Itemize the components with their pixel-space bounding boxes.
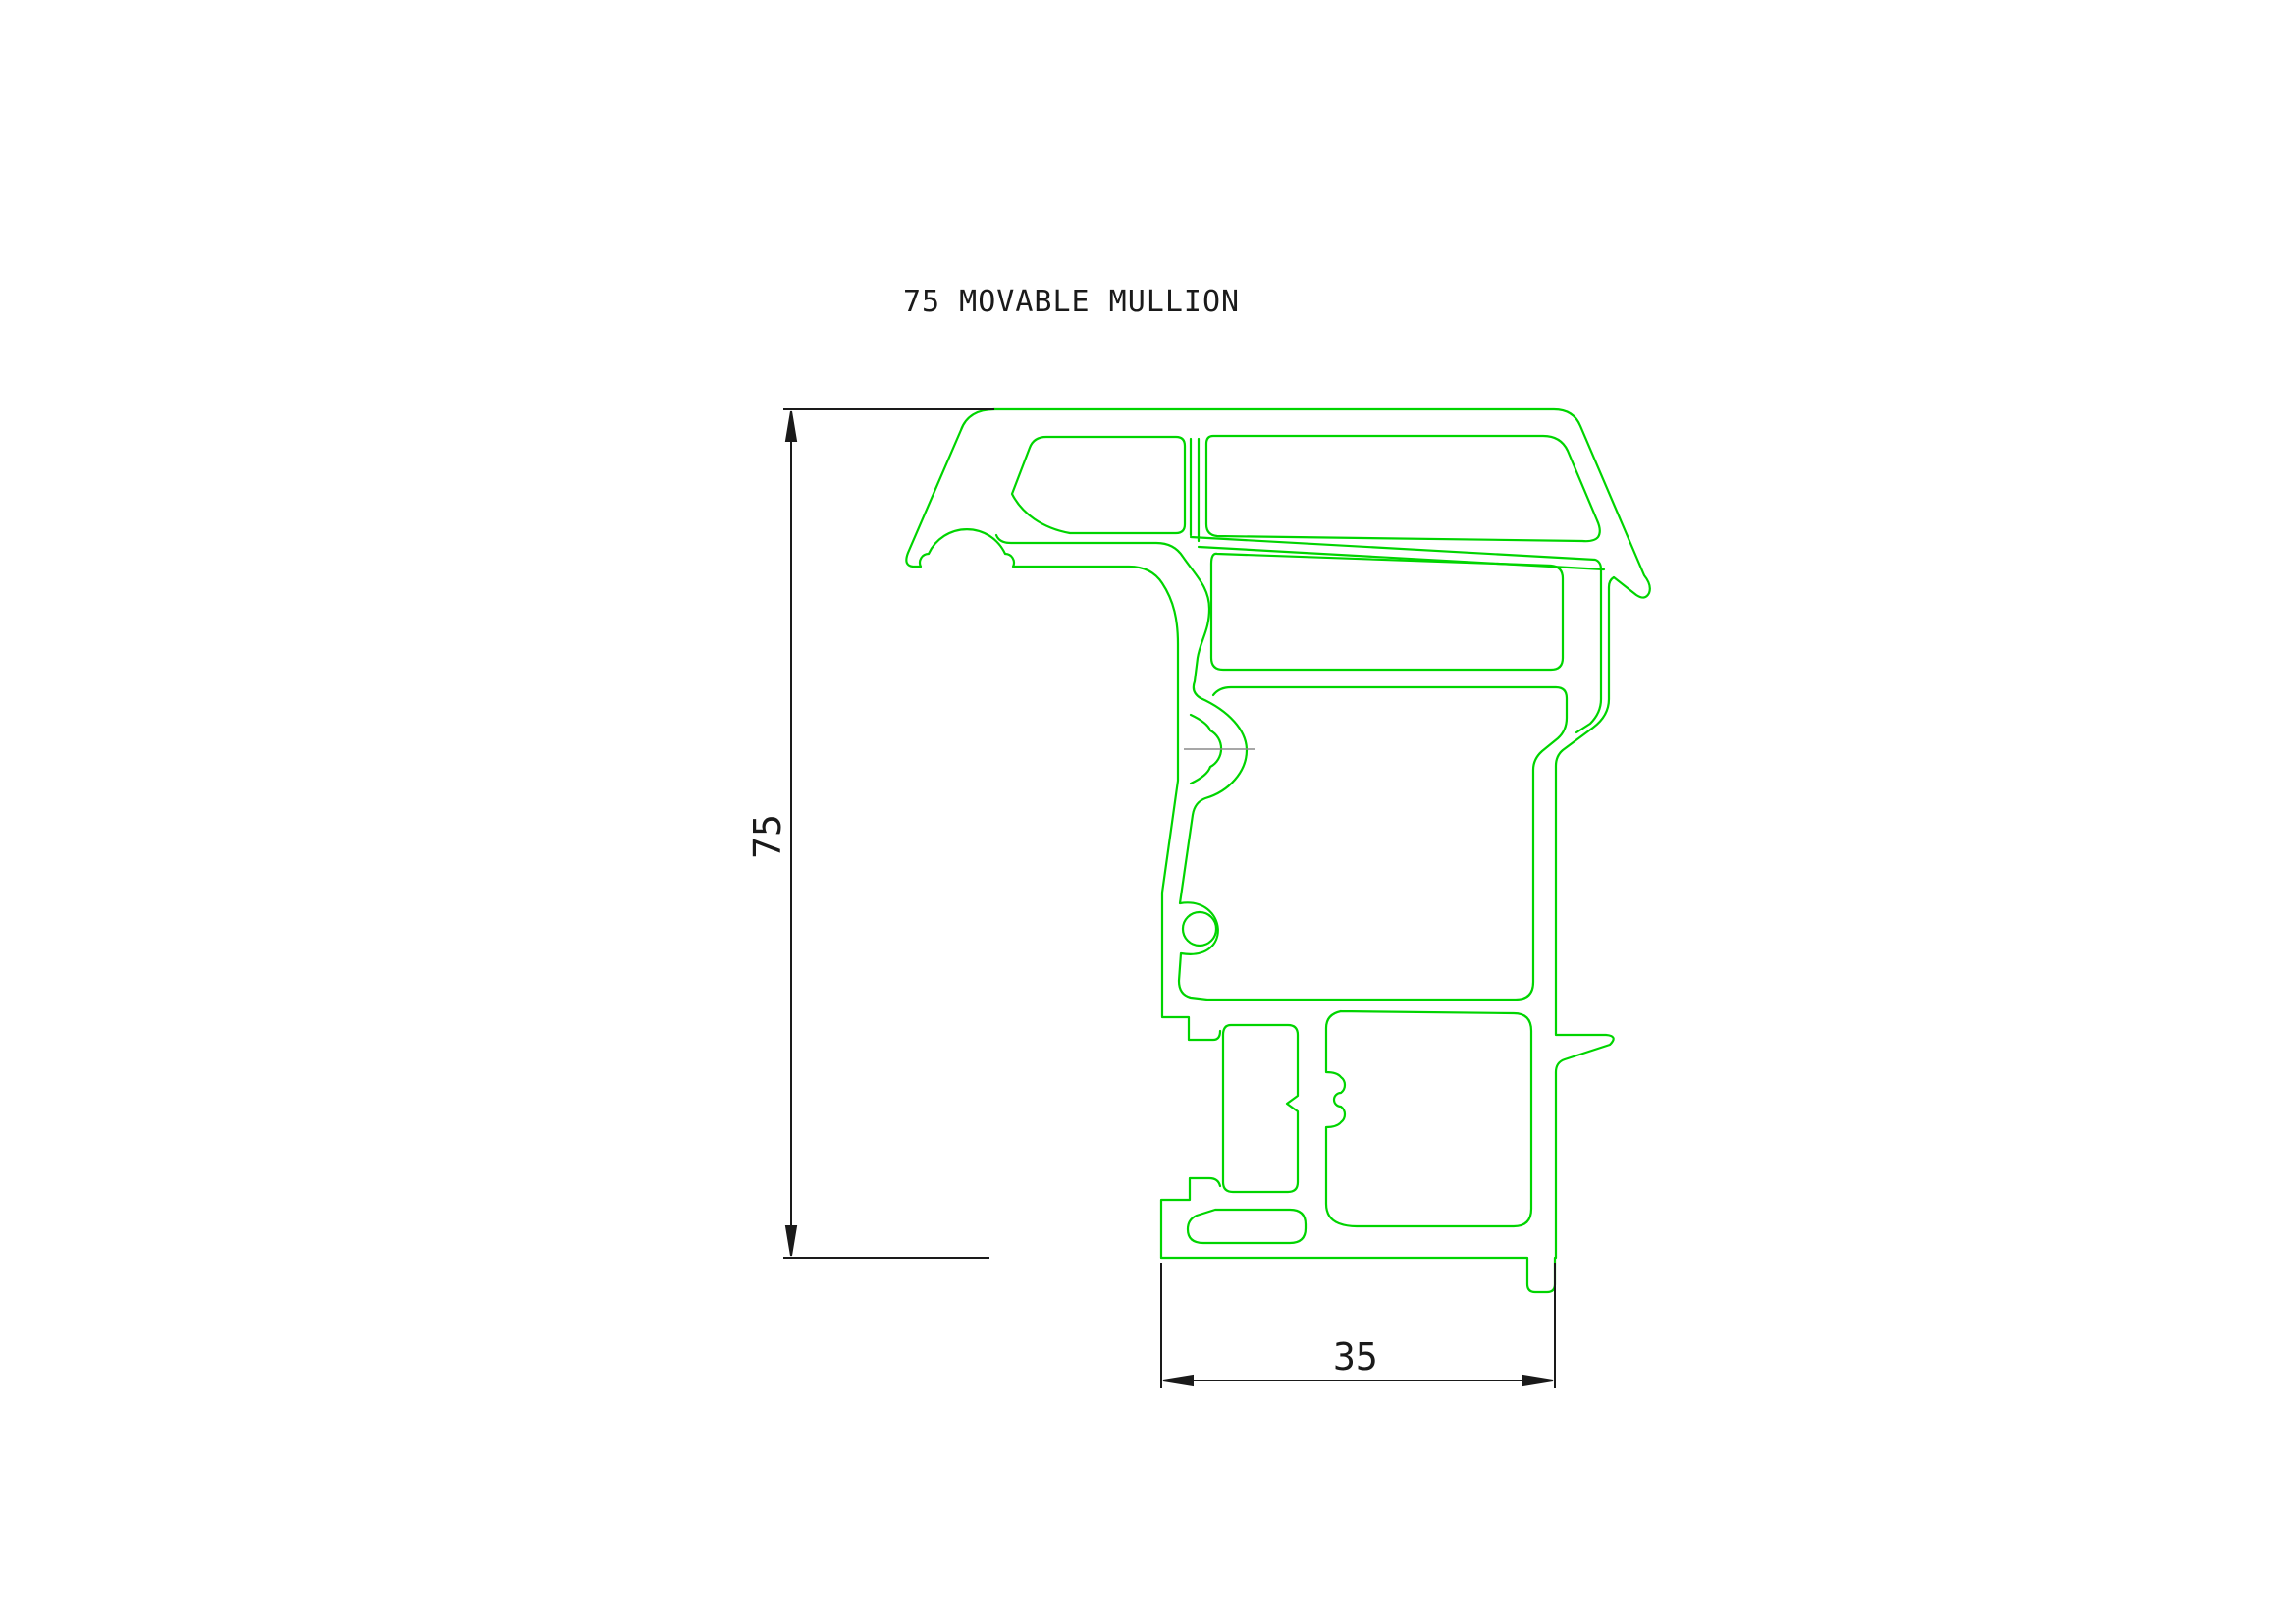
head-chamber-left: [1012, 437, 1185, 533]
drawing-title: 75 MOVABLE MULLION: [903, 285, 1240, 319]
height-arrow-bottom: [786, 1226, 796, 1256]
lower-middle-chamber: [1223, 1025, 1298, 1192]
height-arrow-top: [786, 411, 796, 441]
width-dimension-label: 35: [1333, 1335, 1378, 1379]
dimension-annotations: [783, 409, 1555, 1388]
boot-chamber: [1188, 1210, 1306, 1243]
screw-boss-bore: [1183, 912, 1216, 946]
technical-drawing: [0, 0, 2296, 1623]
head-chamber-right: [1206, 436, 1600, 541]
body-top-chamber: [1211, 554, 1563, 670]
drawing-canvas: 75 MOVABLE MULLION 75 35: [0, 0, 2296, 1623]
width-arrow-left: [1163, 1376, 1193, 1385]
main-chamber-outline: [996, 535, 1567, 1000]
width-arrow-right: [1523, 1376, 1553, 1385]
lower-left-step: [1161, 1178, 1220, 1258]
lower-right-chamber: [1326, 1011, 1531, 1226]
profile-outline: [906, 409, 1649, 1292]
base-outline: [1161, 1258, 1555, 1292]
profile-left-outline: [906, 409, 1220, 1040]
height-dimension-label: 75: [736, 805, 799, 868]
